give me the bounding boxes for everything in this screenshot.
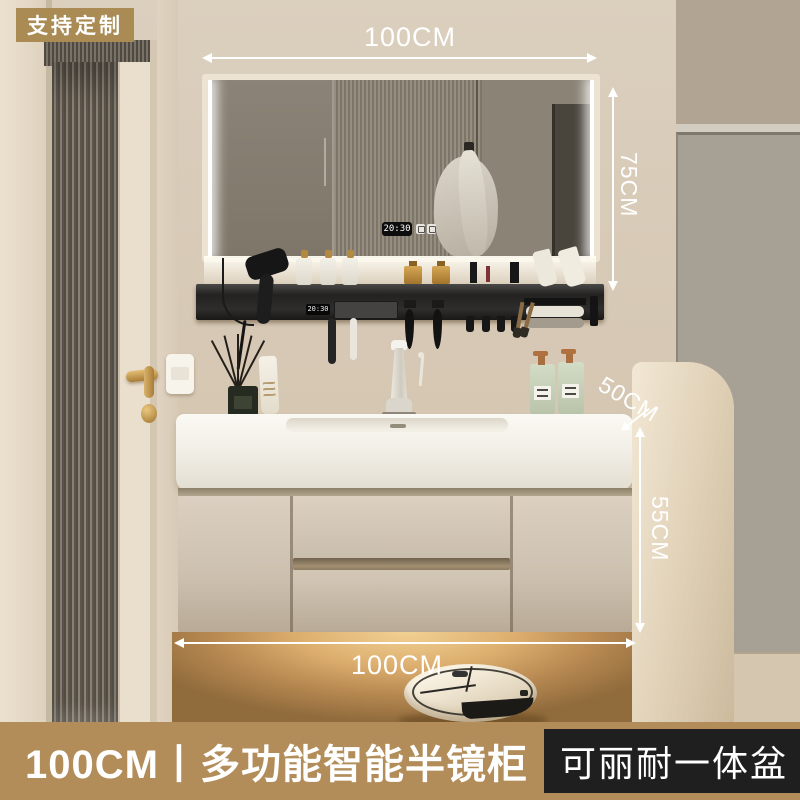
dimension-bottom-width-arrow <box>183 642 627 644</box>
dimension-top-width-arrow <box>211 57 588 59</box>
basin-overflow <box>390 424 406 428</box>
rail-hook <box>466 316 474 332</box>
razor <box>404 300 416 308</box>
cabinet-gap-line <box>510 496 513 634</box>
mirror-clock-display: 20:30 <box>382 222 412 236</box>
perfume-bottle <box>432 266 450 284</box>
mirror-glass: 20:30 <box>208 80 594 258</box>
defog-icon <box>416 224 425 234</box>
counter-shadow-gap <box>178 488 632 496</box>
dimension-mirror-height-arrow <box>612 96 614 282</box>
dimension-cabinet-height-label: 55CM <box>646 496 673 561</box>
door-lock-knob <box>141 404 157 423</box>
lipstick <box>486 266 490 282</box>
toiletry-bottle <box>320 258 336 285</box>
faucet-handle <box>419 356 425 386</box>
cosmetic-item <box>470 262 477 283</box>
mirror-led-strip-right <box>590 80 594 258</box>
dimension-top-width-label: 100CM <box>310 22 510 53</box>
electric-toothbrush <box>328 318 336 364</box>
reed-diffuser-sticks <box>214 328 262 390</box>
soap-dispenser <box>558 362 584 414</box>
electric-toothbrush <box>350 318 357 360</box>
drawer-top <box>293 496 510 558</box>
fluted-glass-door-panel <box>52 62 118 722</box>
perfume-bottle <box>404 266 422 284</box>
cabinet-door-left <box>178 496 290 634</box>
dimension-mirror-height-label: 75CM <box>615 152 642 217</box>
light-toggle-icon <box>427 224 436 234</box>
cabinet-door-right <box>513 496 632 634</box>
towel-roll <box>526 306 584 317</box>
door-handle-rosette <box>144 366 154 398</box>
rail-hook <box>497 316 505 332</box>
rail-hook <box>482 316 490 332</box>
product-title: 100CM丨多功能智能半镜柜 <box>25 732 528 790</box>
faucet <box>389 348 409 402</box>
drawer-bottom <box>293 570 510 634</box>
rail-inset-panel <box>334 301 398 319</box>
rail-clock-display: 20:30 <box>306 304 330 315</box>
robot-vacuum-sensor <box>520 690 528 696</box>
dimension-cabinet-height-arrow <box>639 436 641 624</box>
razor <box>432 300 444 308</box>
cosmetic-item <box>510 262 519 283</box>
customization-badge: 支持定制 <box>16 8 134 42</box>
soap-dispenser <box>530 364 555 414</box>
material-highlight-badge: 可丽耐一体盆 <box>544 729 800 793</box>
reflection-grey-door <box>208 80 334 258</box>
mirror-led-strip-left <box>208 80 212 258</box>
toiletry-bottle <box>342 258 358 285</box>
rail-end-bracket <box>590 296 598 326</box>
reed-diffuser-bottle <box>228 386 258 416</box>
reflection-dark-doorway <box>552 104 594 258</box>
light-switch <box>166 354 194 394</box>
soap-label <box>562 384 579 398</box>
bathroom-scene: 20:30 20:30 <box>0 0 800 800</box>
footer-banner: 100CM丨多功能智能半镜柜 可丽耐一体盆 <box>0 722 800 800</box>
wall-left-of-door <box>0 0 46 722</box>
towel-roll <box>526 318 584 328</box>
lotion-tube <box>258 356 279 415</box>
drawer-groove-handle <box>293 558 510 570</box>
upper-wall-right <box>676 0 800 128</box>
toiletry-bottle <box>296 258 312 285</box>
soap-label <box>534 386 551 400</box>
dimension-bottom-width-label: 100CM <box>297 650 497 681</box>
